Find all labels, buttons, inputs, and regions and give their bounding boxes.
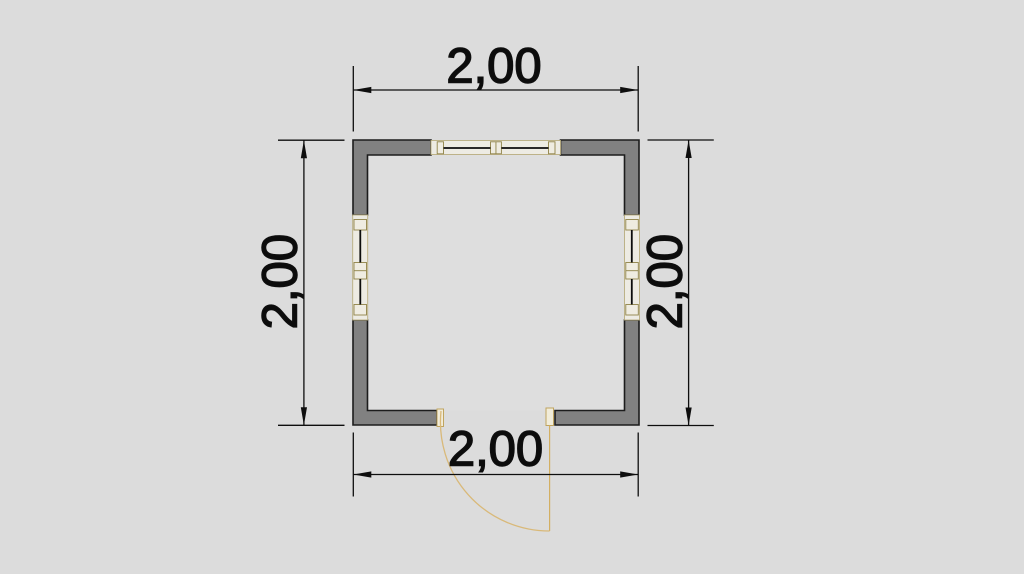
- svg-text:2,00: 2,00: [448, 423, 543, 477]
- svg-text:2,00: 2,00: [639, 234, 693, 329]
- svg-text:2,00: 2,00: [254, 234, 308, 329]
- svg-text:2,00: 2,00: [446, 40, 541, 94]
